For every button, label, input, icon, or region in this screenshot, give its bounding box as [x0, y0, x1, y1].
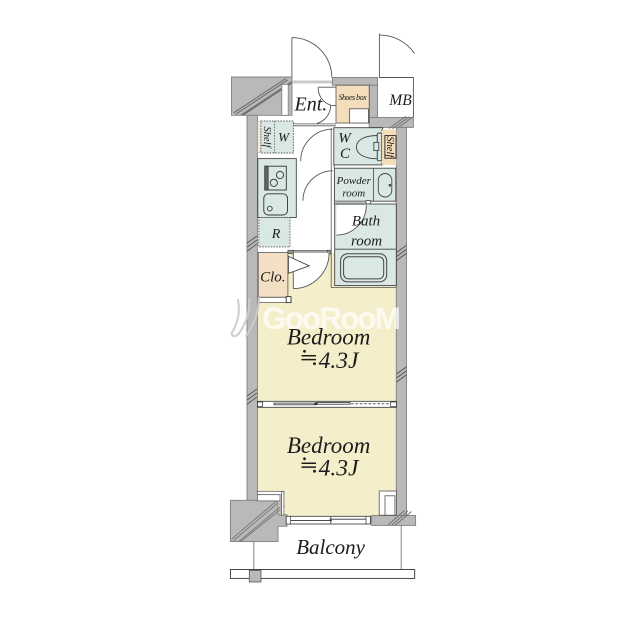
svg-text:R: R — [271, 227, 281, 242]
svg-text:4.3J: 4.3J — [319, 455, 360, 481]
svg-text:room: room — [351, 234, 382, 250]
svg-text:MB: MB — [388, 92, 412, 109]
svg-text:Powder: Powder — [336, 175, 372, 187]
svg-text:Shoes box: Shoes box — [339, 93, 367, 102]
svg-text:room: room — [342, 188, 365, 200]
svg-text:C: C — [340, 146, 351, 162]
svg-text:W: W — [338, 131, 352, 147]
svg-text:Shelf: Shelf — [261, 127, 272, 150]
svg-text:Bedroom: Bedroom — [287, 433, 370, 458]
svg-text:Balcony: Balcony — [296, 535, 365, 559]
svg-text:Bedroom: Bedroom — [287, 324, 370, 349]
svg-text:Bath: Bath — [352, 214, 380, 230]
svg-text:Shelf: Shelf — [384, 136, 395, 159]
svg-text:Clo.: Clo. — [260, 270, 285, 286]
svg-text:W: W — [278, 130, 290, 145]
svg-text:Ent.: Ent. — [294, 93, 328, 115]
svg-text:4.3J: 4.3J — [319, 348, 360, 374]
